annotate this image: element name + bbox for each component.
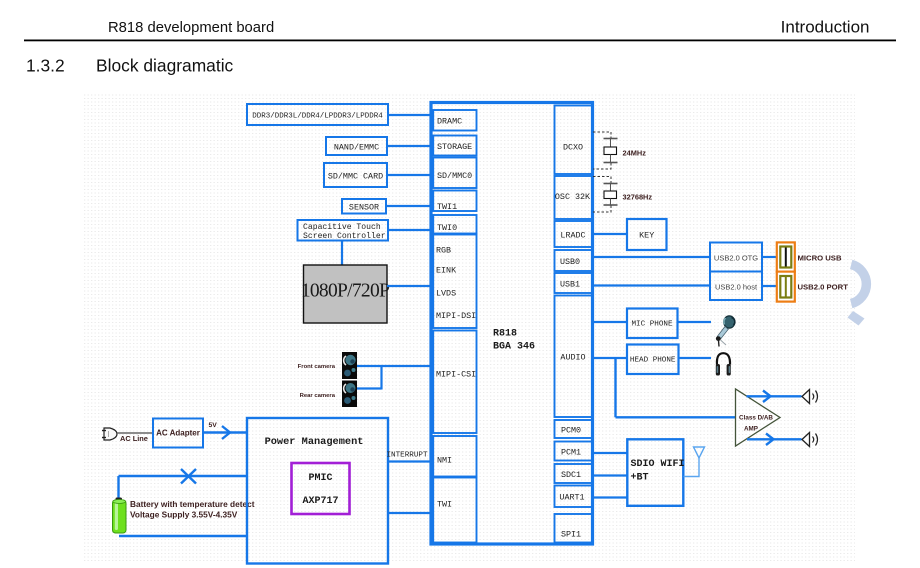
svg-text:32768Hz: 32768Hz [623, 193, 653, 202]
svg-text:AXP717: AXP717 [302, 496, 338, 507]
svg-text:USB2.0 OTG: USB2.0 OTG [714, 254, 758, 263]
svg-text:SD/MMC0: SD/MMC0 [437, 171, 472, 181]
svg-text:BGA 346: BGA 346 [493, 342, 535, 353]
svg-text:Power Management: Power Management [265, 436, 364, 448]
svg-text:DDR3/DDR3L/DDR4/LPDDR3/LPDDR4: DDR3/DDR3L/DDR4/LPDDR3/LPDDR4 [252, 113, 383, 121]
svg-text:NMI: NMI [437, 456, 452, 466]
svg-text:DCXO: DCXO [563, 143, 583, 153]
svg-text:AUDIO: AUDIO [560, 353, 585, 363]
svg-text:AC Line: AC Line [120, 434, 148, 443]
svg-text:USB2.0 host: USB2.0 host [715, 283, 758, 292]
svg-text:MICRO USB: MICRO USB [798, 254, 842, 263]
svg-text:SENSOR: SENSOR [349, 203, 379, 213]
svg-text:MIPI-CSI: MIPI-CSI [436, 370, 476, 380]
svg-text:Block diagramatic: Block diagramatic [96, 56, 234, 76]
svg-text:INTERRUPT: INTERRUPT [387, 452, 428, 460]
svg-text:Voltage Supply 3.55V-4.35V: Voltage Supply 3.55V-4.35V [130, 510, 238, 520]
svg-text:TWI0: TWI0 [437, 223, 457, 233]
svg-text:DRAMC: DRAMC [437, 117, 462, 127]
svg-text:SD/MMC CARD: SD/MMC CARD [328, 172, 383, 182]
svg-text:Battery with temperature detec: Battery with temperature detect [130, 499, 255, 509]
svg-text:Rear camera: Rear camera [300, 393, 336, 399]
svg-text:OSC 32K: OSC 32K [555, 192, 591, 202]
svg-text:PCM1: PCM1 [561, 448, 581, 458]
svg-text:NAND/EMMC: NAND/EMMC [334, 143, 379, 153]
svg-text:AMP: AMP [744, 426, 758, 433]
svg-text:AC Adapter: AC Adapter [156, 429, 200, 438]
svg-text:PCM0: PCM0 [561, 426, 581, 436]
svg-text:24MHz: 24MHz [623, 149, 647, 158]
svg-text:KEY: KEY [639, 231, 654, 241]
svg-text:Screen Controller: Screen Controller [303, 232, 386, 241]
svg-text:EINK: EINK [436, 266, 457, 276]
svg-text:UART1: UART1 [559, 493, 584, 503]
svg-text:Class D/AB: Class D/AB [739, 415, 773, 422]
svg-text:TWI: TWI [437, 500, 452, 510]
svg-text:MIC PHONE: MIC PHONE [631, 321, 672, 329]
svg-text:STORAGE: STORAGE [437, 142, 472, 152]
svg-text:1.3.2: 1.3.2 [26, 56, 65, 76]
svg-text:1080P/720P: 1080P/720P [301, 281, 390, 302]
svg-text:SPI1: SPI1 [561, 530, 581, 540]
svg-text:Introduction: Introduction [781, 18, 870, 37]
svg-text:PMIC: PMIC [308, 473, 332, 484]
svg-text:LVDS: LVDS [436, 289, 456, 299]
svg-text:R818: R818 [493, 329, 517, 340]
svg-text:USB1: USB1 [560, 280, 580, 290]
svg-text:Capacitive Touch: Capacitive Touch [303, 223, 381, 232]
svg-text:+BT: +BT [631, 473, 649, 484]
svg-text:USB2.0 PORT: USB2.0 PORT [798, 283, 849, 292]
svg-text:LRADC: LRADC [560, 231, 585, 241]
svg-text:MIPI-DSI: MIPI-DSI [436, 311, 476, 321]
svg-text:USB0: USB0 [560, 257, 580, 267]
svg-text:Front camera: Front camera [298, 364, 336, 370]
svg-text:HEAD PHONE: HEAD PHONE [630, 357, 676, 365]
svg-text:5V: 5V [209, 422, 218, 429]
svg-text:RGB: RGB [436, 246, 451, 256]
svg-text:SDIO WIFI: SDIO WIFI [631, 459, 685, 470]
svg-text:R818 development board: R818 development board [108, 20, 274, 36]
svg-text:SDC1: SDC1 [561, 470, 581, 480]
svg-text:TWI1: TWI1 [437, 202, 457, 212]
